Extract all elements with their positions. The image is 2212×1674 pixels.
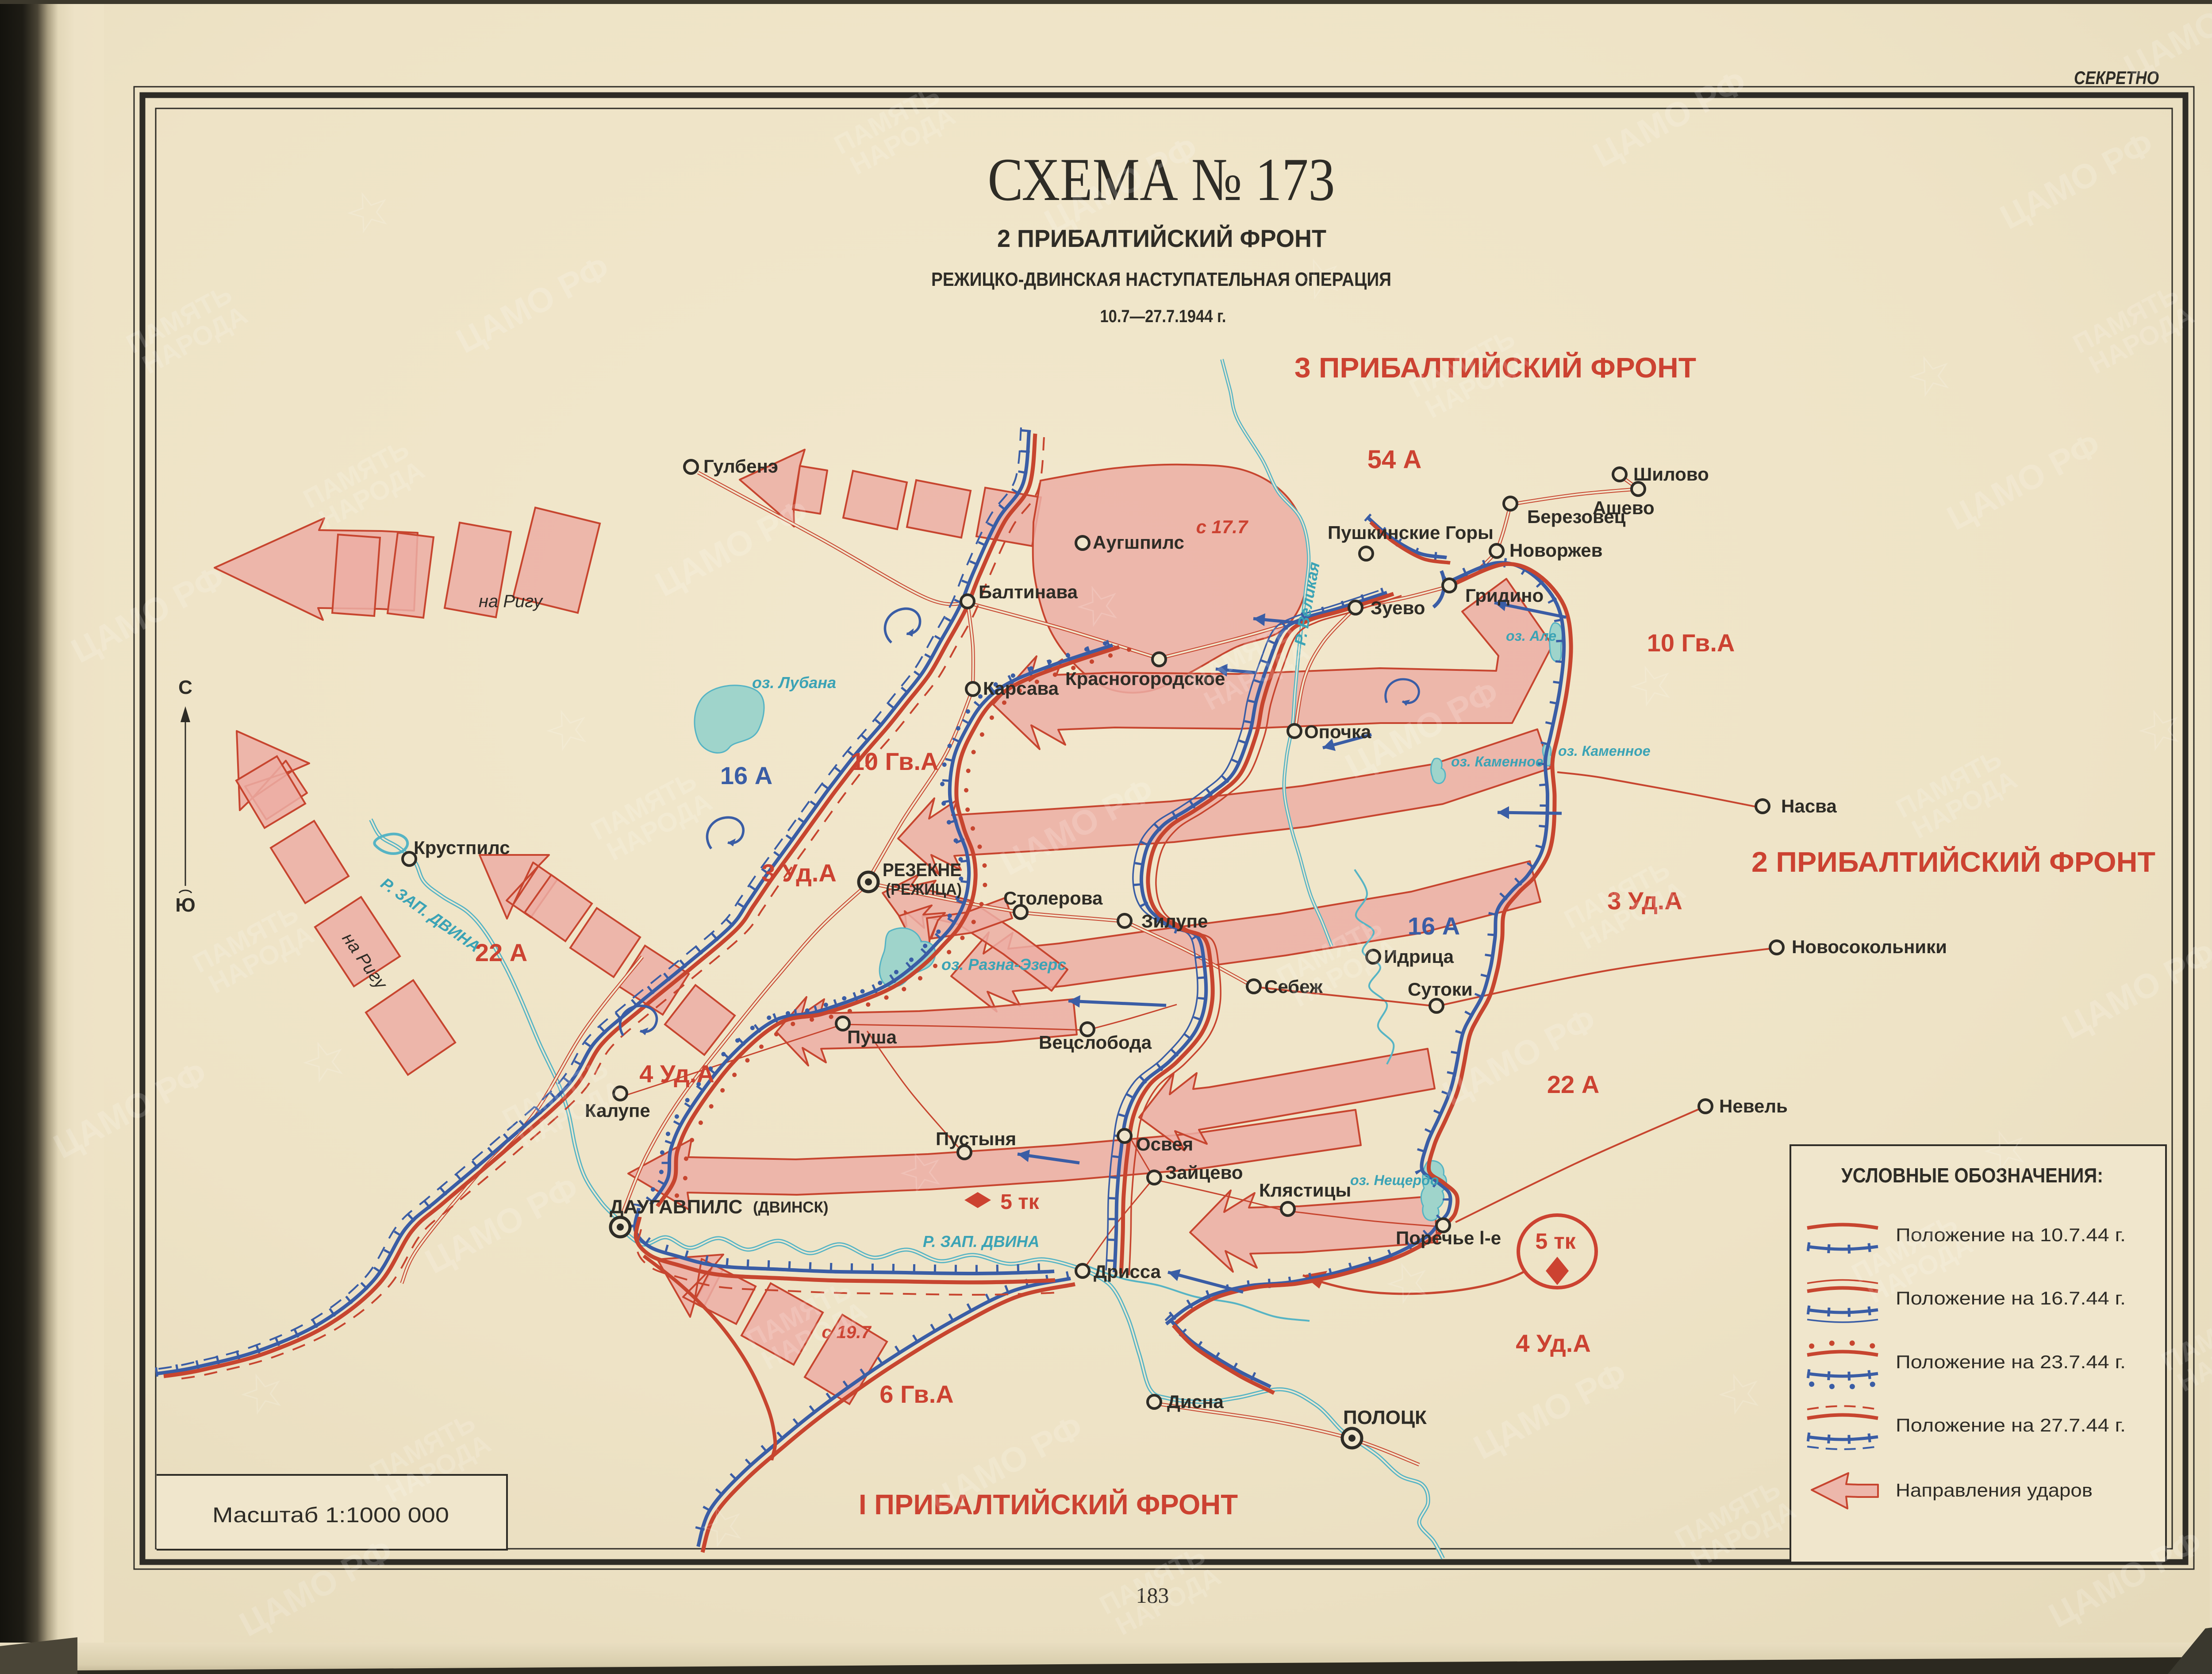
svg-text:Р. ЗАП. ДВИНА: Р. ЗАП. ДВИНА xyxy=(923,1232,1040,1251)
svg-text:оз. Але: оз. Але xyxy=(1506,628,1556,644)
svg-text:Крустпилс: Крустпилс xyxy=(414,837,510,858)
svg-text:2 ПРИБАЛТИЙСКИЙ ФРОНТ: 2 ПРИБАЛТИЙСКИЙ ФРОНТ xyxy=(1751,846,2155,878)
svg-text:6 Гв.А: 6 Гв.А xyxy=(879,1380,953,1408)
svg-text:Зилупе: Зилупе xyxy=(1141,911,1208,931)
svg-text:10.7—27.7.1944 г.: 10.7—27.7.1944 г. xyxy=(1100,307,1226,326)
svg-text:Гридино: Гридино xyxy=(1465,585,1544,606)
svg-text:оз. Лубана: оз. Лубана xyxy=(752,673,836,692)
svg-text:5 тк: 5 тк xyxy=(1000,1190,1040,1214)
svg-text:С: С xyxy=(178,677,192,698)
svg-text:16 А: 16 А xyxy=(720,762,772,789)
svg-text:16 А: 16 А xyxy=(1408,912,1460,940)
svg-text:Зайцево: Зайцево xyxy=(1165,1162,1243,1183)
svg-text:4 Уд.А: 4 Уд.А xyxy=(639,1060,714,1088)
svg-text:Направления ударов: Направления ударов xyxy=(1896,1480,2093,1501)
svg-text:Сутоки: Сутоки xyxy=(1408,979,1473,1000)
svg-text:Аугшпилс: Аугшпилс xyxy=(1093,532,1184,553)
svg-text:Пустыня: Пустыня xyxy=(936,1128,1016,1149)
svg-text:Положение на 27.7.44 г.: Положение на 27.7.44 г. xyxy=(1896,1415,2126,1435)
svg-text:Освея: Освея xyxy=(1136,1134,1193,1154)
svg-text:Гулбенэ: Гулбенэ xyxy=(703,456,778,477)
svg-text:(РЕЖИЦА): (РЕЖИЦА) xyxy=(886,880,962,898)
svg-text:ПОЛОЦК: ПОЛОЦК xyxy=(1343,1407,1427,1428)
svg-text:РЕЗЕКНЕ: РЕЗЕКНЕ xyxy=(883,859,961,880)
svg-text:Ю: Ю xyxy=(175,894,195,916)
svg-text:оз. Каменное: оз. Каменное xyxy=(1451,754,1544,770)
svg-text:10 Гв.А: 10 Гв.А xyxy=(851,747,939,775)
svg-text:оз. Каменное: оз. Каменное xyxy=(1558,743,1651,759)
svg-text:Дрисса: Дрисса xyxy=(1094,1261,1161,1282)
svg-text:Новоржев: Новоржев xyxy=(1509,540,1602,561)
svg-text:22 А: 22 А xyxy=(475,939,527,966)
svg-text:Пуша: Пуша xyxy=(847,1027,897,1047)
svg-text:Положение на 16.7.44 г.: Положение на 16.7.44 г. xyxy=(1896,1288,2126,1308)
svg-text:3 Уд.А: 3 Уд.А xyxy=(761,859,837,887)
svg-text:Столерова: Столерова xyxy=(1003,888,1103,908)
svg-text:оз. Нещердо: оз. Нещердо xyxy=(1350,1172,1439,1188)
svg-text:Шилово: Шилово xyxy=(1633,464,1709,485)
svg-text:Дисна: Дисна xyxy=(1167,1391,1224,1412)
svg-text:УСЛОВНЫЕ ОБОЗНАЧЕНИЯ:: УСЛОВНЫЕ ОБОЗНАЧЕНИЯ: xyxy=(1841,1164,2103,1187)
svg-text:Вецслобода: Вецслобода xyxy=(1039,1032,1152,1053)
svg-text:54 А: 54 А xyxy=(1367,445,1422,474)
svg-text:Масштаб 1:1000 000: Масштаб 1:1000 000 xyxy=(212,1504,449,1527)
svg-text:I ПРИБАЛТИЙСКИЙ ФРОНТ: I ПРИБАЛТИЙСКИЙ ФРОНТ xyxy=(859,1488,1238,1520)
svg-text:Зуево: Зуево xyxy=(1371,597,1425,618)
svg-text:на Ригу: на Ригу xyxy=(479,592,544,611)
svg-text:Клястицы: Клястицы xyxy=(1259,1180,1351,1201)
svg-text:Карсава: Карсава xyxy=(983,678,1059,699)
svg-text:Пушкинские Горы: Пушкинские Горы xyxy=(1328,522,1494,543)
svg-text:22 А: 22 А xyxy=(1547,1070,1599,1098)
svg-text:ДАУГАВПИЛС: ДАУГАВПИЛС xyxy=(610,1196,742,1218)
svg-text:Невель: Невель xyxy=(1719,1096,1788,1116)
svg-text:Балтинава: Балтинава xyxy=(979,581,1078,602)
svg-text:с 17.7: с 17.7 xyxy=(1196,516,1248,537)
svg-text:оз. Разна-Эзерс: оз. Разна-Эзерс xyxy=(941,955,1066,974)
svg-text:Поречье l-е: Поречье l-е xyxy=(1396,1228,1501,1248)
svg-text:2 ПРИБАЛТИЙСКИЙ ФРОНТ: 2 ПРИБАЛТИЙСКИЙ ФРОНТ xyxy=(997,224,1326,252)
svg-text:4 Уд.А: 4 Уд.А xyxy=(1516,1329,1591,1357)
svg-text:Новосокольники: Новосокольники xyxy=(1792,936,1947,957)
svg-text:Насва: Насва xyxy=(1781,796,1837,816)
svg-text:Положение на 23.7.44 г.: Положение на 23.7.44 г. xyxy=(1896,1351,2126,1372)
svg-text:Березовец: Березовец xyxy=(1527,506,1626,527)
svg-text:5 тк: 5 тк xyxy=(1535,1229,1576,1254)
svg-text:(ДВИНСК): (ДВИНСК) xyxy=(753,1199,829,1216)
